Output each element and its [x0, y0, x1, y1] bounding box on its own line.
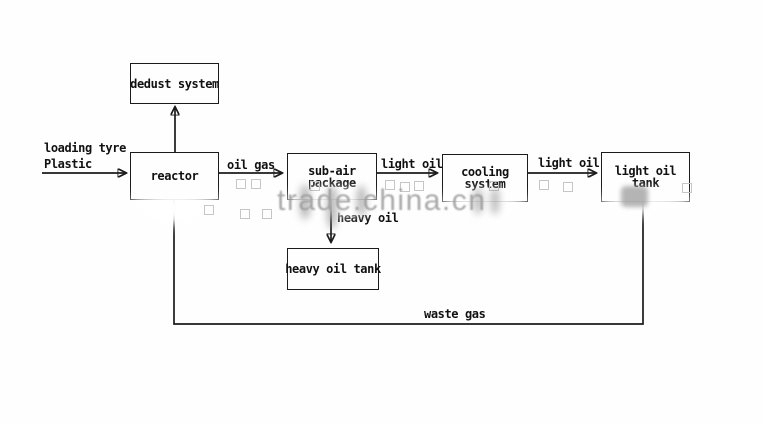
- watermark-square-artifact: [240, 209, 250, 219]
- label-light-oil-1: light oil: [381, 156, 442, 172]
- node-sub-air-package-label-line1: sub-air: [308, 165, 356, 177]
- label-feed-input: loading tyre Plastic: [44, 140, 126, 172]
- watermark-square-artifact: [251, 179, 261, 189]
- process-flow-diagram: dedust system reactor sub-air package co…: [0, 0, 763, 424]
- watermark-square-artifact: [236, 179, 246, 189]
- label-feed-line1: loading tyre: [44, 140, 126, 156]
- node-dedust-system-label: dedust system: [130, 78, 219, 90]
- watermark-square-artifact: [539, 180, 549, 190]
- watermark-text: trade.china.cn: [277, 184, 486, 218]
- node-reactor-label: reactor: [151, 170, 199, 182]
- watermark-square-artifact: [563, 182, 573, 192]
- label-light-oil-2: light oil: [538, 155, 599, 171]
- white-smudge-artifact: [150, 198, 205, 224]
- label-feed-line2: Plastic: [44, 156, 126, 172]
- node-heavy-oil-tank: heavy oil tank: [287, 248, 379, 290]
- gray-blob-artifact: [621, 186, 648, 207]
- label-waste-gas: waste gas: [424, 306, 485, 322]
- watermark-square-artifact: [204, 205, 214, 215]
- node-heavy-oil-tank-label: heavy oil tank: [285, 263, 381, 275]
- watermark-square-artifact: [262, 209, 272, 219]
- watermark-square-artifact: [682, 183, 692, 193]
- node-dedust-system: dedust system: [130, 63, 219, 104]
- gray-smear-artifact: [491, 188, 499, 214]
- label-oil-gas: oil gas: [227, 157, 275, 173]
